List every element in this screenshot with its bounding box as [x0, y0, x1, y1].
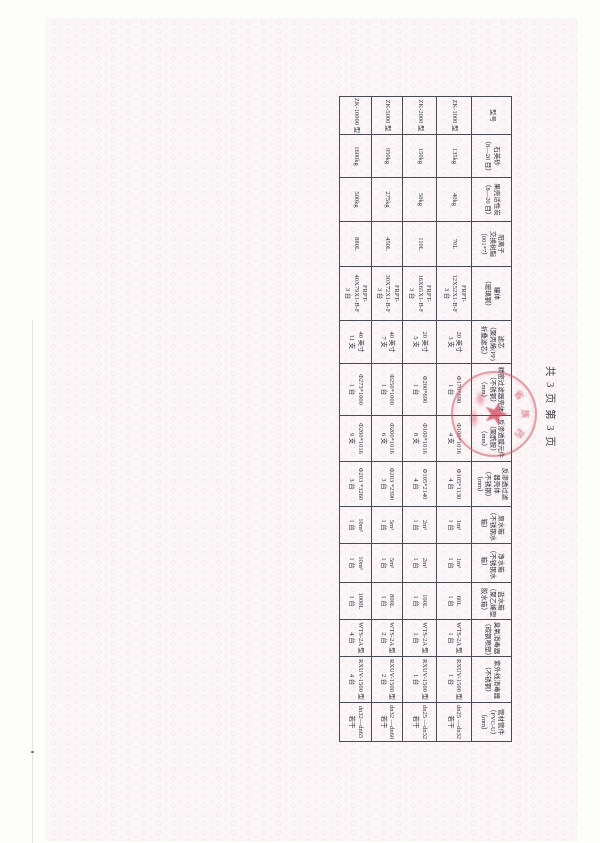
header-cell: 臭氧消毒器 （碳钢喷塑）	[472, 620, 512, 657]
table-cell: dn32 —dn60 若干	[372, 703, 403, 742]
table-cell: Φ250*1000 1 台	[372, 364, 403, 416]
table-cell: 50kg	[403, 178, 437, 222]
table-cell: WTS-2A 型 4 台	[340, 620, 372, 657]
rotated-content: 共 3 页 第 3 页 型号石英砂 （8—20 目）果壳活性炭 （8—20 目）…	[0, 0, 600, 843]
model-cell: ZK-10000 型	[340, 97, 372, 135]
header-cell: 原水箱 （不锈钢水箱）	[472, 507, 512, 544]
table-row: ZK-10000 型1600kg500kg880LFRPT- 40X79X1-B…	[340, 97, 372, 742]
table-cell: 950kg	[372, 135, 403, 178]
table-cell: FRPT- 40X79X1-B-F 3 台	[340, 267, 372, 321]
table-cell: Φ105*1130 4 台	[437, 462, 472, 507]
star-icon: ★	[478, 401, 513, 428]
scanned-document-page: 共 3 页 第 3 页 型号石英砂 （8—20 目）果壳活性炭 （8—20 目）…	[0, 0, 600, 843]
table-cell: 135kg	[437, 135, 472, 178]
table-cell: RXUV-1500 型 2 台	[372, 657, 403, 703]
table-cell: Φ203 *2390 3 台	[372, 462, 403, 507]
table-cell: 110L	[403, 222, 437, 267]
model-cell: ZK-5000 型	[372, 97, 403, 135]
stamp-smudge	[476, 391, 485, 406]
table-cell: RXUV-1500 型 1 台	[437, 657, 472, 703]
table-cell: FRPT- 30X72X1-B-F 3 台	[372, 267, 403, 321]
table-cell: 100L 1 台	[403, 583, 437, 620]
table-cell: 1m³ 1 台	[437, 507, 472, 544]
stamp-smudge	[470, 410, 478, 427]
header-cell: 紫外线消毒器 （不锈钢）	[472, 657, 512, 703]
table-cell: 40 英寸 11 支	[340, 321, 372, 364]
table-cell: 450L	[372, 222, 403, 267]
table-cell: 70L	[437, 222, 472, 267]
table-cell: WTS-2A 型 1 台	[437, 620, 472, 657]
header-cell: 石英砂 （8—20 目）	[472, 135, 512, 178]
table-cell: Φ200*1016 9 支	[340, 416, 372, 462]
table-cell: Φ203 *3260 3 台	[340, 462, 372, 507]
model-cell: ZK-2000 型	[403, 97, 437, 135]
table-cell: WTS-2A 型 2 台	[372, 620, 403, 657]
header-cell: 滤芯 （聚丙烯(PP) 折叠滤芯）	[472, 321, 512, 364]
table-cell: 40 英寸 7 支	[372, 321, 403, 364]
table-cell: Φ273*1000 1 台	[340, 364, 372, 416]
table-cell: 1600kg	[340, 135, 372, 178]
table-cell: dn32—dn65 若干	[340, 703, 372, 742]
table-cell: Φ200*1016 6 支	[372, 416, 403, 462]
official-stamp: ★ 省 族 药	[451, 371, 537, 457]
page-number: 共 3 页 第 3 页	[543, 366, 558, 448]
stamp-arc-char: 药	[512, 426, 526, 440]
header-cell: 盐水箱 （聚乙烯塑 胶水箱）	[472, 583, 512, 620]
table-cell: RXUV-1500 型 4 台	[340, 657, 372, 703]
table-cell: 10m³ 1 台	[340, 544, 372, 583]
table-cell: 40kg	[437, 178, 472, 222]
table-cell: WTS-2A 型 1 台	[403, 620, 437, 657]
table-cell: 880L	[340, 222, 372, 267]
table-cell: 5m³ 1 台	[372, 544, 403, 583]
table-cell: 500kg	[340, 178, 372, 222]
table-cell: Φ105*2140 4 台	[403, 462, 437, 507]
model-cell: ZK-1000 型	[437, 97, 472, 135]
header-cell: 管材管件 （PVC-U） （mm）	[472, 703, 512, 742]
header-cell: 阳离子 交换树脂 （001*7）	[472, 222, 512, 267]
table-cell: 10m³ 1 台	[340, 507, 372, 544]
table-cell: 150kg	[403, 135, 437, 178]
table-cell: Φ200*690 1 台	[403, 364, 437, 416]
table-cell: dn25 —dn32 若干	[437, 703, 472, 742]
header-cell: 反渗透过滤 器壳体 （不锈钢） （mm）	[472, 462, 512, 507]
stamp-arc-char: 省	[512, 388, 526, 402]
header-cell: 净水箱 （不锈钢水箱）	[472, 544, 512, 583]
table-cell: 2m³ 1 台	[403, 544, 437, 583]
table-cell: 800L 1 台	[372, 583, 403, 620]
table-row: ZK-5000 型950kg275kg450LFRPT- 30X72X1-B-F…	[372, 97, 403, 742]
table-row: ZK-2000 型150kg50kg110LFRPT- 16X65X1-B-F …	[403, 97, 437, 742]
table-cell: 20 英寸 5 支	[403, 321, 437, 364]
table-cell: 2m³ 1 台	[403, 507, 437, 544]
table-cell: Φ100*1016 8 支	[403, 416, 437, 462]
table-cell: FRPT- 16X65X1-B-F 3 台	[403, 267, 437, 321]
table-cell: 1m³ 1 台	[437, 544, 472, 583]
header-cell: 型号	[472, 97, 512, 135]
table-cell: 275kg	[372, 178, 403, 222]
table-cell: 1000L 1 台	[340, 583, 372, 620]
table-cell: dn25 —dn32 若干	[403, 703, 437, 742]
header-cell: 果壳活性炭 （8—20 目）	[472, 178, 512, 222]
table-cell: 5m³ 1 台	[372, 507, 403, 544]
table-cell: 20 英寸 3 支	[437, 321, 472, 364]
header-cell: 罐体 （玻璃钢）	[472, 267, 512, 321]
stamp-arc-char: 族	[520, 409, 530, 419]
table-cell: RXUV-1500 型 1 台	[403, 657, 437, 703]
table-cell: FRPT- 12X52X1-B-F 3 台	[437, 267, 472, 321]
table-cell: 60L 1 台	[437, 583, 472, 620]
